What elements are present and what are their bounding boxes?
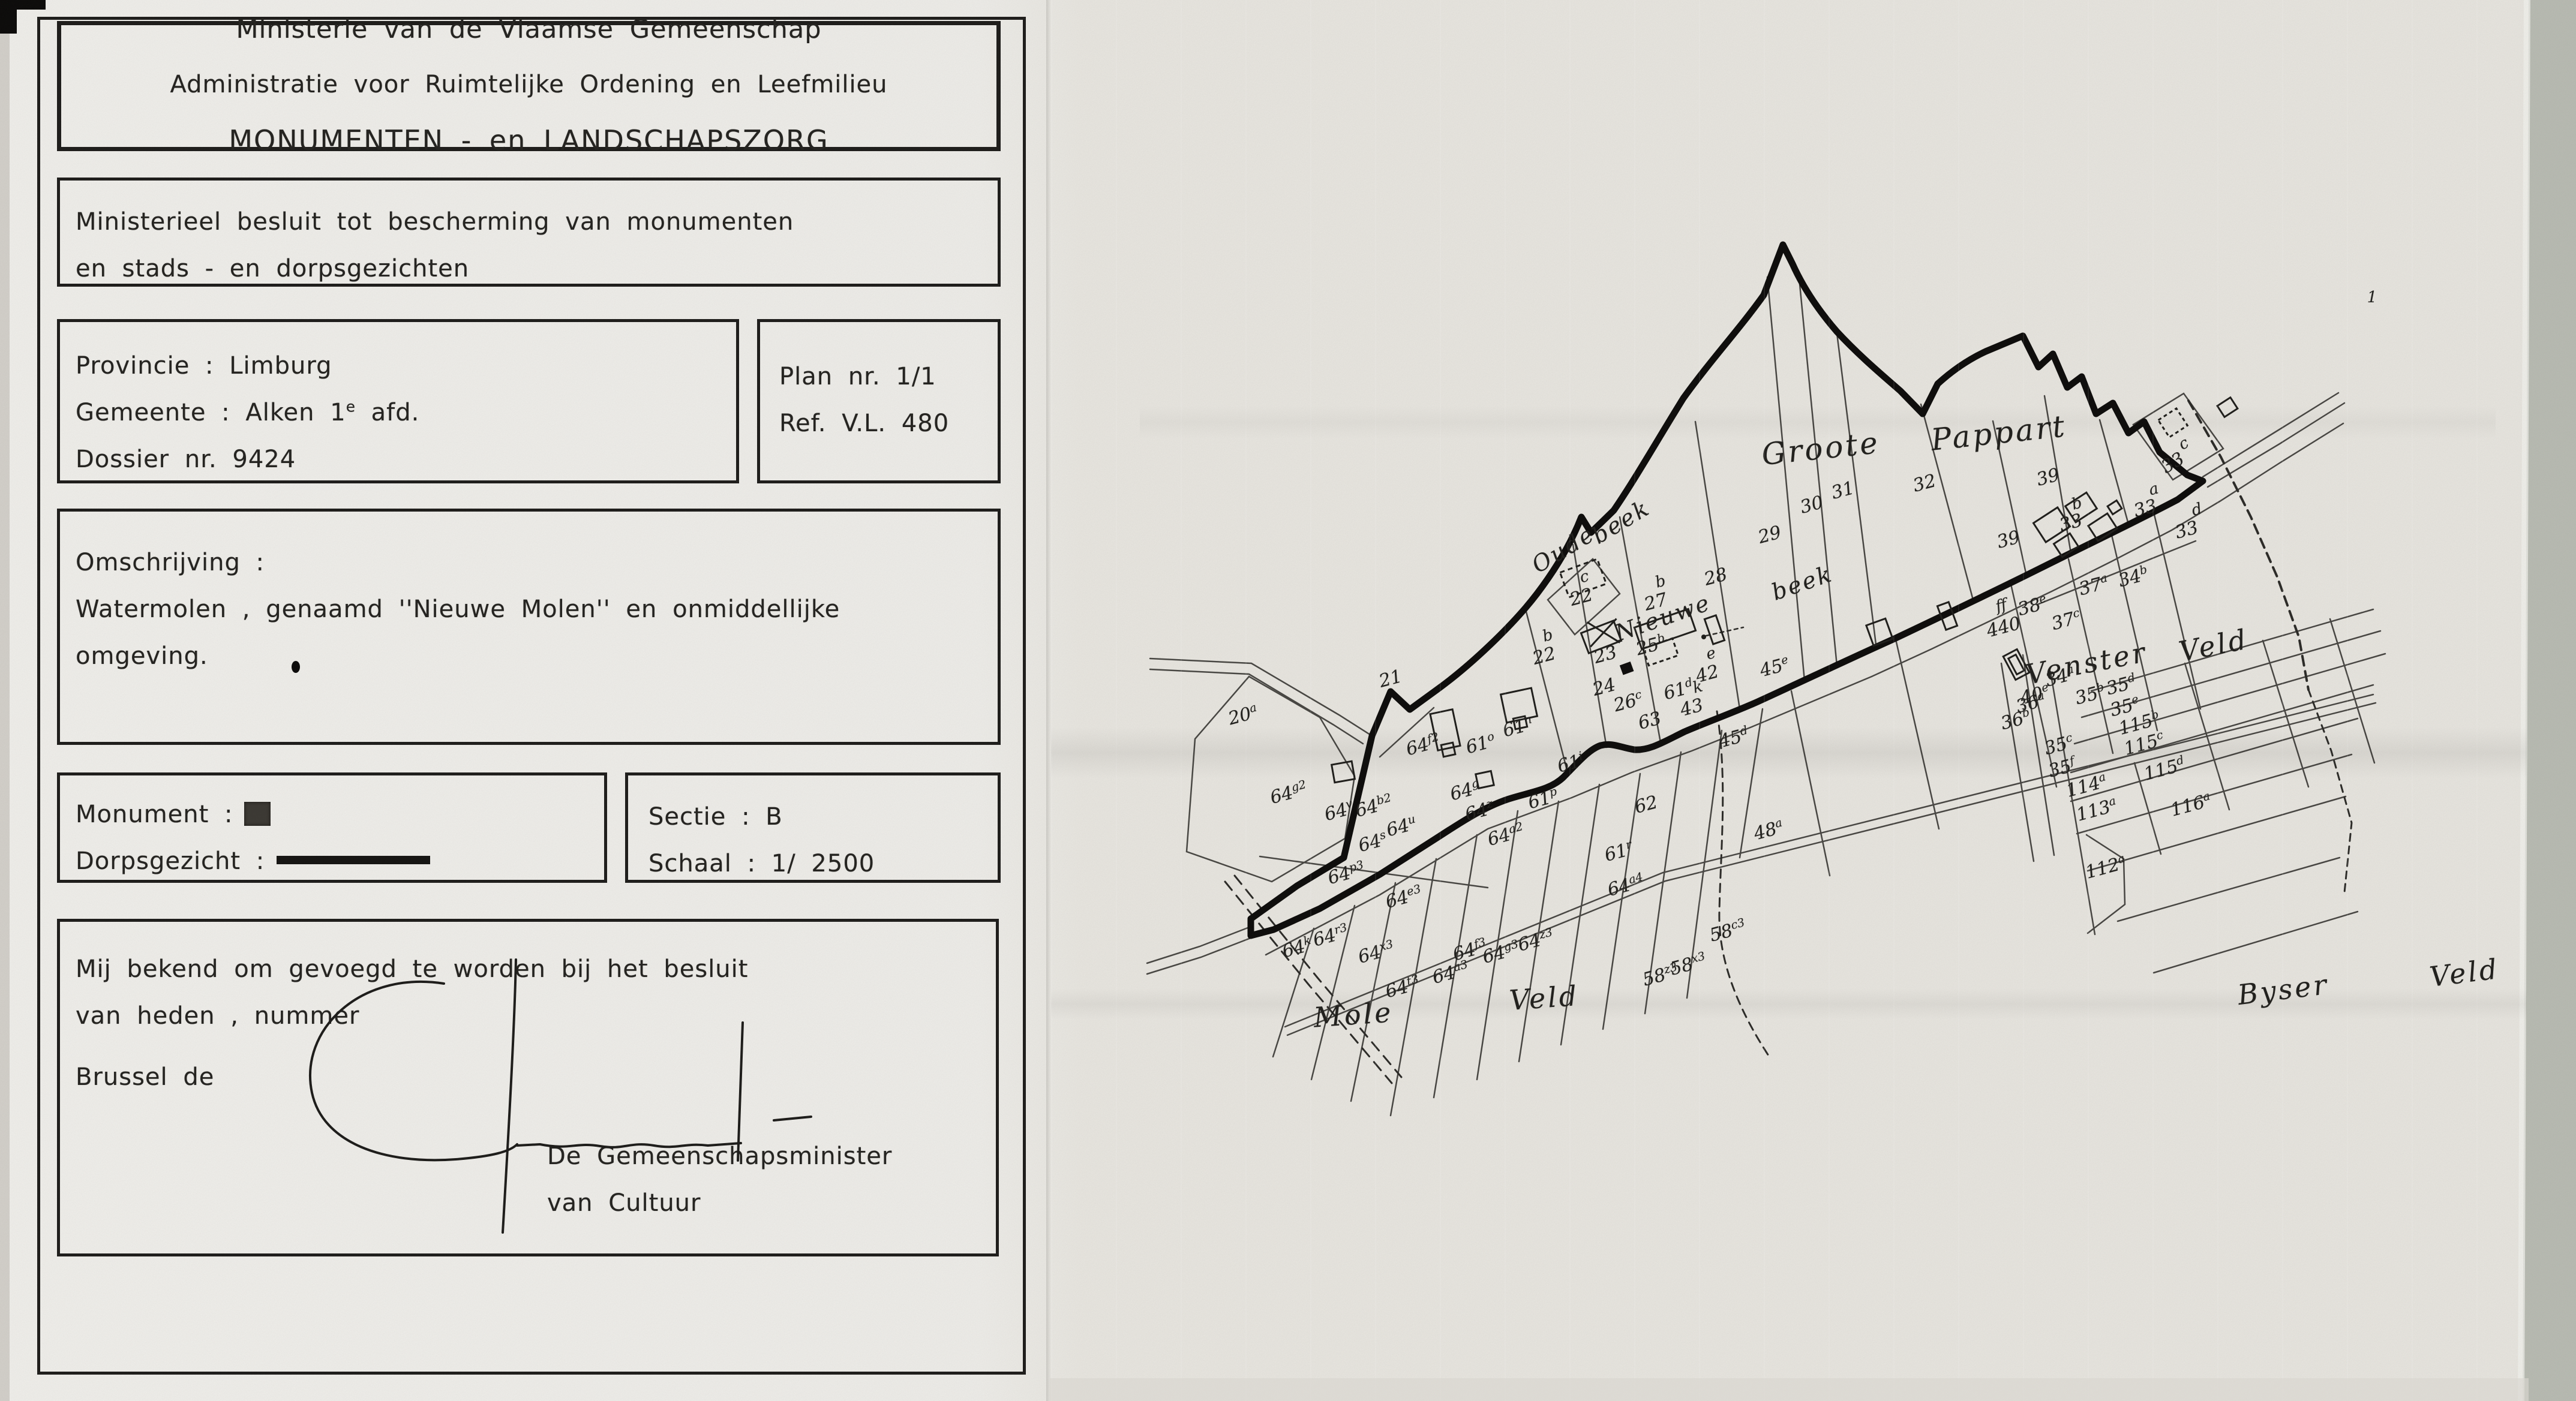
scan-crease xyxy=(1051,727,2527,778)
scanned-decree-document: Ministerie van de Vlaamse Gemeenschap Ad… xyxy=(0,0,2576,1401)
page-bottom-edge xyxy=(1050,1378,2529,1401)
scan-crease xyxy=(1051,988,2527,1020)
scan-grain xyxy=(0,0,2576,1401)
scan-crease xyxy=(1140,405,2496,439)
cadastral-map-svg xyxy=(0,0,2576,1401)
